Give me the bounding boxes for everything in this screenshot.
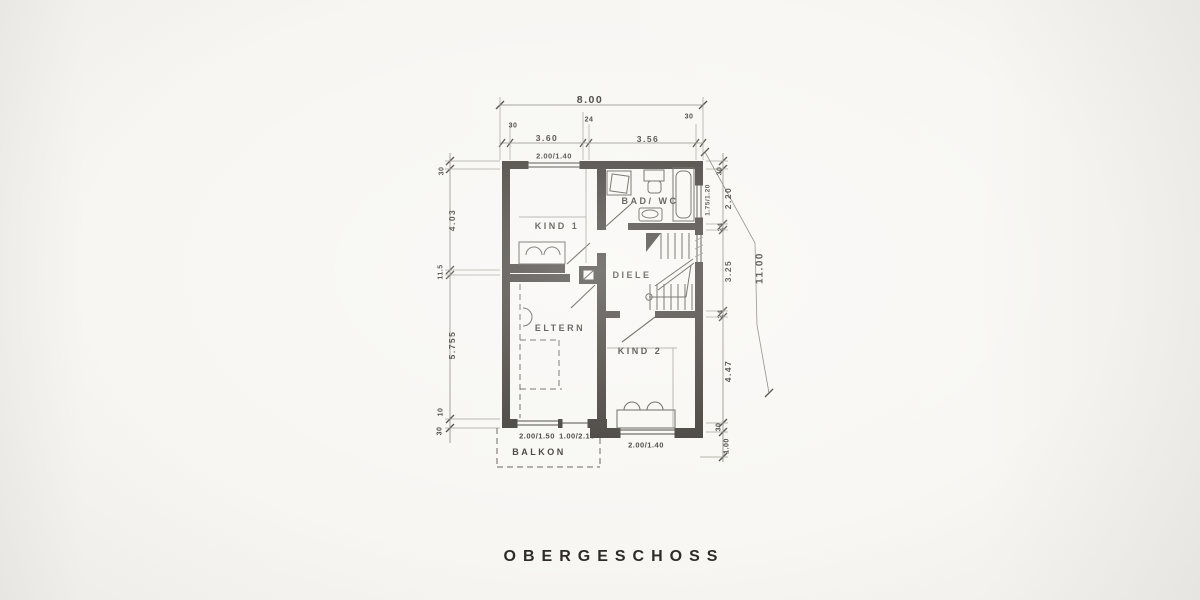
dim-top-bad: 3.56 xyxy=(637,134,660,144)
bad-door xyxy=(604,204,631,228)
dim-top-kind1: 3.60 xyxy=(536,133,559,143)
dim-right-stair: 3.25 xyxy=(723,260,733,283)
page-title: OBERGESCHOSS xyxy=(504,548,725,566)
wall-left xyxy=(502,161,510,428)
dim-right-wall-top: 30 xyxy=(717,167,724,176)
stair-window xyxy=(695,235,703,262)
wall-eltern-bottom-l xyxy=(502,419,517,428)
floorplan-drawing xyxy=(0,0,1200,600)
dim-left-b1: 10 xyxy=(438,408,445,417)
room-label-bad: BAD/ WC xyxy=(622,196,679,206)
room-label-eltern: ELTERN xyxy=(535,323,585,333)
toilet xyxy=(644,170,664,193)
bad-window xyxy=(695,185,703,218)
dim-left-wall-top: 30 xyxy=(439,167,446,176)
dim-right-m1: 24 xyxy=(718,223,725,232)
wall-kind1-bad xyxy=(597,169,606,230)
kind2-window xyxy=(620,428,675,438)
wall-right-c xyxy=(695,262,703,437)
dim-right-m2: 24 xyxy=(718,310,725,319)
shower xyxy=(607,171,631,195)
furniture xyxy=(519,168,694,428)
dim-right-overall: 11.00 xyxy=(755,252,766,284)
staircase xyxy=(646,233,694,310)
floorplan-page: 8.00 30 3.60 24 3.56 30 2.00/1.40 30 4.0… xyxy=(0,0,1200,600)
eltern-window xyxy=(517,419,558,428)
stair-arrow xyxy=(646,233,661,252)
dim-top-mid: 24 xyxy=(585,117,594,124)
room-label-diele: DIELE xyxy=(612,270,651,280)
label-balkon-door: 1.00/2.10 xyxy=(559,432,595,441)
dim-left-eltern: 5.755 xyxy=(447,331,457,360)
wall-kind2-top-l xyxy=(606,311,620,318)
bed-kind1 xyxy=(519,242,565,264)
dim-left-wall-bot: 30 xyxy=(437,427,444,436)
washbasin xyxy=(639,208,662,221)
wall-right-b xyxy=(695,218,703,235)
dim-right-kind2: 4.47 xyxy=(723,360,733,383)
dim-top-overall: 8.00 xyxy=(577,94,603,106)
bathtub xyxy=(673,168,694,221)
balkon-door xyxy=(562,419,588,428)
wall-bad-bottom xyxy=(628,223,695,230)
room-label-balkon: BALKON xyxy=(512,447,566,457)
wall-eltern-top xyxy=(502,274,570,282)
wall-eltern-kind2 xyxy=(597,253,606,433)
bed-kind2 xyxy=(617,402,675,428)
eltern-wall-arc xyxy=(523,308,532,326)
wall-kind2-top-r xyxy=(655,311,703,318)
label-kind1-window: 2.00/1.40 xyxy=(536,152,572,161)
wall-kind2-bottom-r xyxy=(675,428,703,438)
kind1-window xyxy=(528,161,580,169)
wall-right-a xyxy=(695,161,703,185)
dim-top-wall-right: 30 xyxy=(685,114,694,121)
chimney-symbol xyxy=(579,266,598,284)
room-label-kind2: KIND 2 xyxy=(618,346,663,356)
wall-eltern-bottom-m xyxy=(558,419,562,428)
room-label-kind1: KIND 1 xyxy=(535,221,580,231)
dim-left-kind1: 4.03 xyxy=(447,209,457,232)
label-kind2-window: 2.00/1.40 xyxy=(628,441,664,450)
dim-right-bad: 2.20 xyxy=(723,187,733,210)
dim-right-wall-bot: 30 xyxy=(716,423,723,432)
kind2-door xyxy=(622,317,655,342)
kind1-door xyxy=(567,243,590,264)
dim-left-mid: 11.5 xyxy=(438,264,445,279)
dim-top-wall-left: 30 xyxy=(509,123,518,130)
label-bad-window: 1.75/1.20 xyxy=(705,184,712,216)
label-eltern-window: 2.00/1.50 xyxy=(519,432,555,441)
eltern-door xyxy=(571,285,595,308)
wall-kind1-bottom xyxy=(502,264,565,273)
dim-right-balkon: 1.00 xyxy=(724,438,731,454)
